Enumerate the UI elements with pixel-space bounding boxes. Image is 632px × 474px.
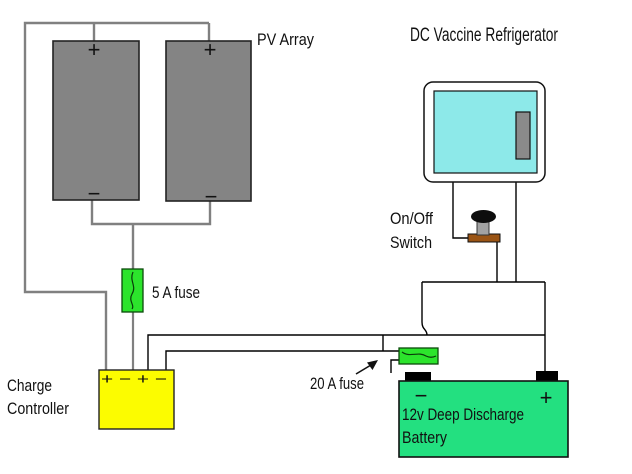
charge-controller: + − + − Charge Controller — [7, 370, 174, 429]
refrigerator-label: DC Vaccine Refrigerator — [410, 25, 558, 46]
charge-controller-terminal-marks: + − + − — [101, 371, 167, 388]
switch-label-line2: Switch — [390, 233, 432, 252]
diagram-canvas: + + − − PV Array 5 A fuse — [0, 0, 632, 474]
fuse-20a-arrow-shaft — [356, 365, 371, 374]
controller-negative-line — [166, 351, 399, 371]
fridge-left-wire — [453, 182, 468, 238]
refrigerator: DC Vaccine Refrigerator — [410, 25, 558, 182]
pv-panel-2 — [166, 41, 251, 201]
pv-panel-2-plus-mark: + — [204, 37, 217, 62]
pv-array: + + − − PV Array — [53, 30, 314, 209]
switch-knob — [471, 210, 496, 223]
controller-positive-line — [148, 335, 545, 371]
pv-panel-1-minus-mark: − — [88, 181, 101, 206]
on-off-switch: On/Off Switch — [390, 209, 500, 252]
pv-negative-bus-wire — [92, 200, 210, 224]
wiring-diagram: + + − − PV Array 5 A fuse — [0, 0, 632, 474]
fuse-20a-battery-hook — [391, 360, 399, 373]
refrigerator-handle — [516, 112, 530, 159]
switch-stem — [477, 221, 489, 235]
battery-plus-mark: + — [540, 385, 553, 410]
fuse-5a-label: 5 A fuse — [152, 283, 200, 302]
fuse-20a-label: 20 A fuse — [310, 374, 364, 393]
charge-controller-label-line1: Charge — [7, 376, 52, 395]
battery-label-line1: 12v Deep Discharge — [402, 405, 524, 424]
fuse-20a-arrow-head — [367, 360, 378, 370]
battery-label-line2: Battery — [402, 428, 447, 447]
load-bus-junction-drop — [422, 282, 427, 335]
pv-panel-2-minus-mark: − — [205, 184, 218, 209]
pv-panel-1-plus-mark: + — [88, 37, 101, 62]
pv-array-label: PV Array — [257, 30, 314, 49]
charge-controller-label-line2: Controller — [7, 399, 69, 418]
switch-label-line1: On/Off — [390, 209, 433, 228]
fuse-5a: 5 A fuse — [122, 269, 200, 312]
battery: − + 12v Deep Discharge Battery — [399, 371, 568, 457]
fuse-20a-body — [399, 348, 438, 364]
pv-panel-1 — [53, 41, 139, 200]
